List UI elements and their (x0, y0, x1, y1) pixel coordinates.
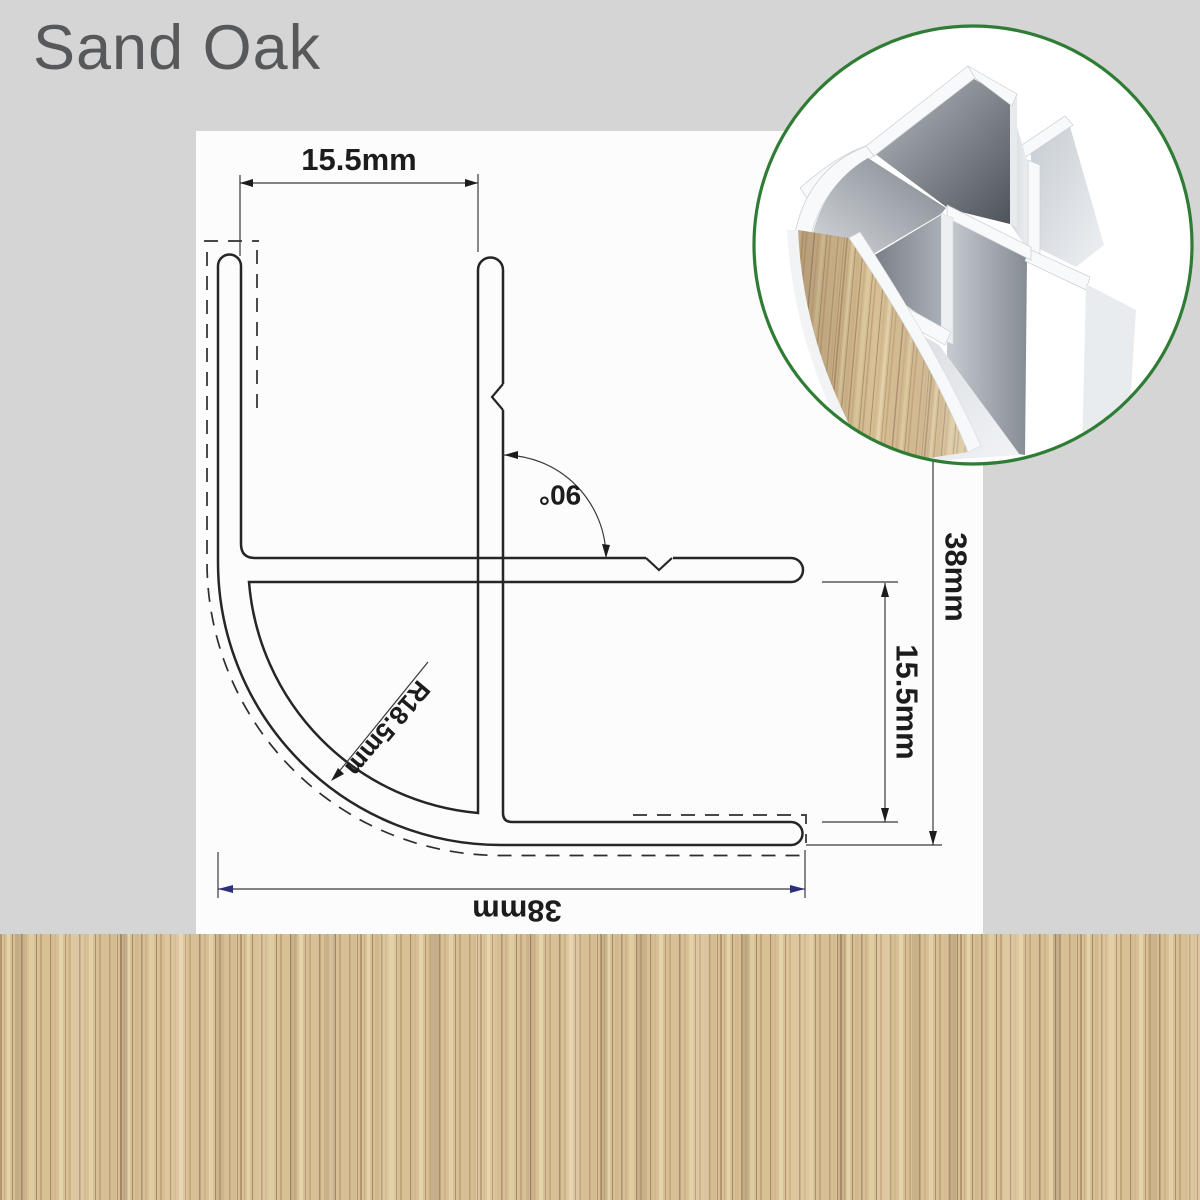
angle-label: 90° (539, 480, 581, 511)
dim-bottom-width-label: 38mm (472, 894, 562, 929)
dim-right-slot-label: 15.5mm (890, 644, 925, 759)
technical-drawing: 15.5mm 38mm 38mm 15.5mm 90° R18.5mm (0, 0, 1200, 1200)
product-title: Sand Oak (33, 12, 321, 84)
dim-top-width-label: 15.5mm (301, 142, 416, 177)
wood-swatch (0, 934, 1200, 1200)
detail-inset (754, 26, 1192, 468)
dim-right-height-label: 38mm (939, 532, 974, 622)
product-image: 15.5mm 38mm 38mm 15.5mm 90° R18.5mm (0, 0, 1200, 1200)
